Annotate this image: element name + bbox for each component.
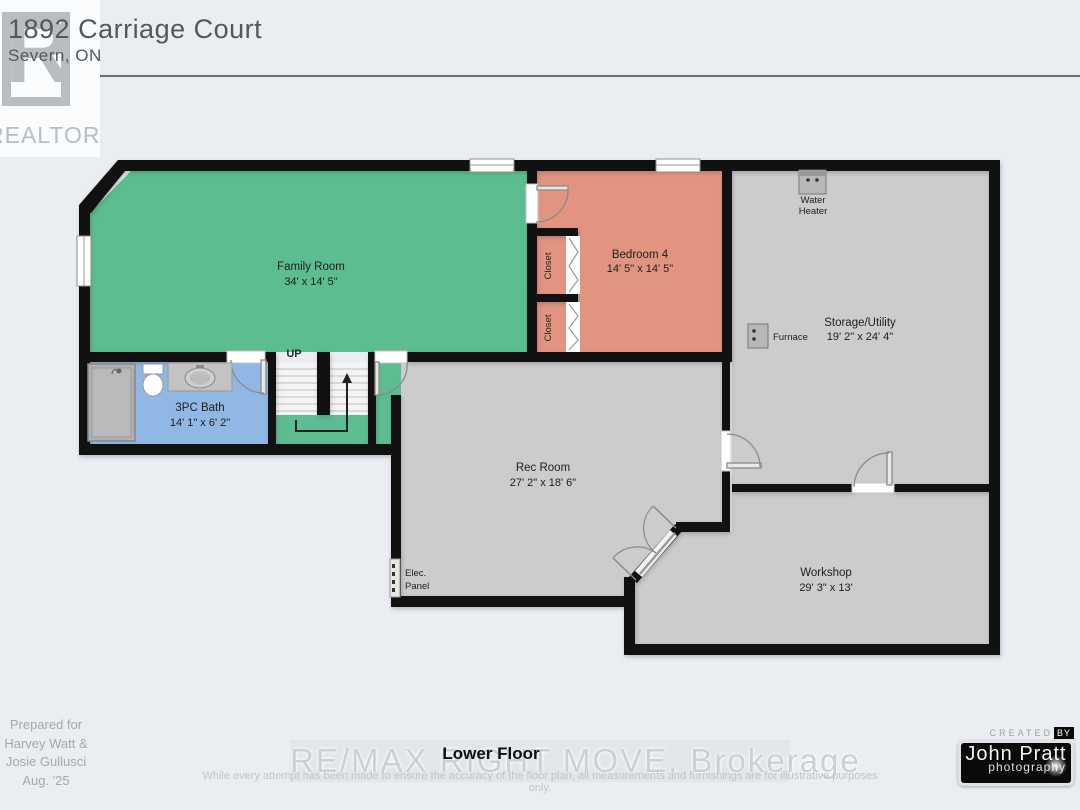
bedroom4-dims: 14' 5" x 14' 5" xyxy=(607,263,674,275)
room-bedroom4 xyxy=(537,171,722,352)
bath-dims: 14' 1" x 6' 2" xyxy=(170,417,230,429)
prepared-line: Aug. '25 xyxy=(0,772,92,791)
stair-flight-right xyxy=(330,362,368,415)
disclaimer-text: While every attempt has been made to ens… xyxy=(200,770,880,794)
prepared-line: Josie Gullusci xyxy=(0,753,92,772)
photographer-credit: CREATED BY John Pratt photography xyxy=(958,726,1074,786)
elec-panel-label-1: Elec. xyxy=(405,568,426,579)
electrical-panel-icon xyxy=(390,559,400,597)
header-divider xyxy=(0,75,1080,77)
room-fills xyxy=(90,171,989,644)
closet-bifold-doors xyxy=(566,236,580,352)
stair-flight-left xyxy=(276,362,317,415)
closet-top-label: Closet xyxy=(543,252,554,279)
rec-room-label: Rec Room xyxy=(516,462,570,474)
family-room-label: Family Room xyxy=(277,261,345,273)
water-heater-label-2: Heater xyxy=(799,206,828,217)
stair-landing xyxy=(276,415,368,444)
realtor-wordmark: REALTOR® xyxy=(0,122,100,149)
prepared-line: Harvey Watt & xyxy=(0,735,92,754)
family-room-dims: 34' x 14' 5" xyxy=(284,276,337,288)
stairs-up-label: UP xyxy=(286,348,301,360)
property-city: Severn, ON xyxy=(8,46,102,66)
by-label: BY xyxy=(1054,727,1074,739)
closet-bottom-label: Closet xyxy=(543,314,554,341)
created-by-row: CREATED BY xyxy=(958,726,1074,739)
furnace-label: Furnace xyxy=(773,332,808,343)
water-heater-icon xyxy=(799,170,826,194)
page: Family Room 34' x 14' 5" Bedroom 4 14' 5… xyxy=(0,0,1080,810)
floor-plan: Family Room 34' x 14' 5" Bedroom 4 14' 5… xyxy=(0,0,1080,810)
furnace-icon xyxy=(748,324,768,348)
toilet-bowl xyxy=(143,374,163,396)
workshop-label: Workshop xyxy=(800,567,852,579)
property-address: 1892 Carriage Court xyxy=(8,14,262,45)
elec-panel-label-2: Panel xyxy=(405,581,429,592)
storage-dims: 19' 2" x 24' 4" xyxy=(827,331,894,343)
bath-label: 3PC Bath xyxy=(175,402,224,414)
rec-room-dims: 27' 2" x 18' 6" xyxy=(510,477,577,489)
workshop-dims: 29' 3" x 13' xyxy=(799,582,852,594)
bedroom4-label: Bedroom 4 xyxy=(612,249,669,261)
john-pratt-logo: John Pratt photography xyxy=(958,740,1074,786)
floor-title: Lower Floor xyxy=(391,744,591,764)
prepared-line: Prepared for xyxy=(0,716,92,735)
sparkle-icon xyxy=(1043,753,1069,779)
toilet-tank xyxy=(143,364,163,374)
prepared-for-block: Prepared for Harvey Watt & Josie Gullusc… xyxy=(0,716,92,790)
water-heater-label-1: Water xyxy=(801,195,826,206)
created-label: CREATED xyxy=(990,728,1053,738)
storage-label: Storage/Utility xyxy=(824,317,896,329)
